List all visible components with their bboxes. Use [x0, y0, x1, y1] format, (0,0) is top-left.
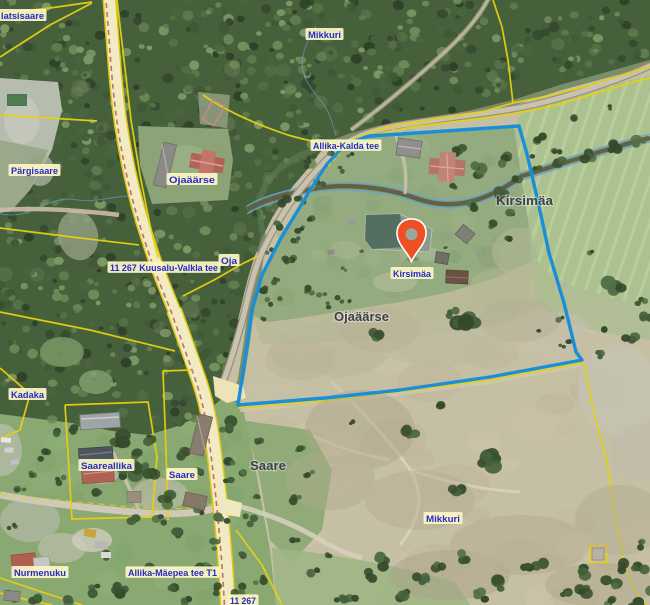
svg-text:Allika-Mäepea tee T1: Allika-Mäepea tee T1: [128, 568, 217, 578]
svg-text:11 267 Kuusalu-Valkla tee: 11 267 Kuusalu-Valkla tee: [110, 263, 218, 273]
svg-text:latsisaare: latsisaare: [1, 11, 44, 22]
svg-text:Kadaka: Kadaka: [11, 390, 45, 401]
svg-text:11 267: 11 267: [230, 596, 256, 605]
svg-text:Ojaäärse: Ojaäärse: [334, 309, 389, 324]
svg-text:Ojaäärse: Ojaäärse: [169, 175, 215, 186]
svg-text:Kirsimäa: Kirsimäa: [393, 269, 432, 280]
svg-text:Saareallika: Saareallika: [81, 461, 133, 472]
svg-text:Pärgisaare: Pärgisaare: [11, 166, 58, 177]
svg-text:Allika-Kalda tee: Allika-Kalda tee: [313, 141, 379, 151]
svg-text:Saare: Saare: [250, 458, 286, 473]
svg-text:Nurmenuku: Nurmenuku: [14, 568, 66, 579]
svg-text:Mikkuri: Mikkuri: [426, 514, 460, 525]
svg-text:Mikkuri: Mikkuri: [308, 30, 341, 41]
svg-text:Oja: Oja: [221, 256, 238, 267]
svg-text:Saare: Saare: [169, 470, 195, 481]
svg-text:Kirsimäa: Kirsimäa: [496, 193, 554, 208]
